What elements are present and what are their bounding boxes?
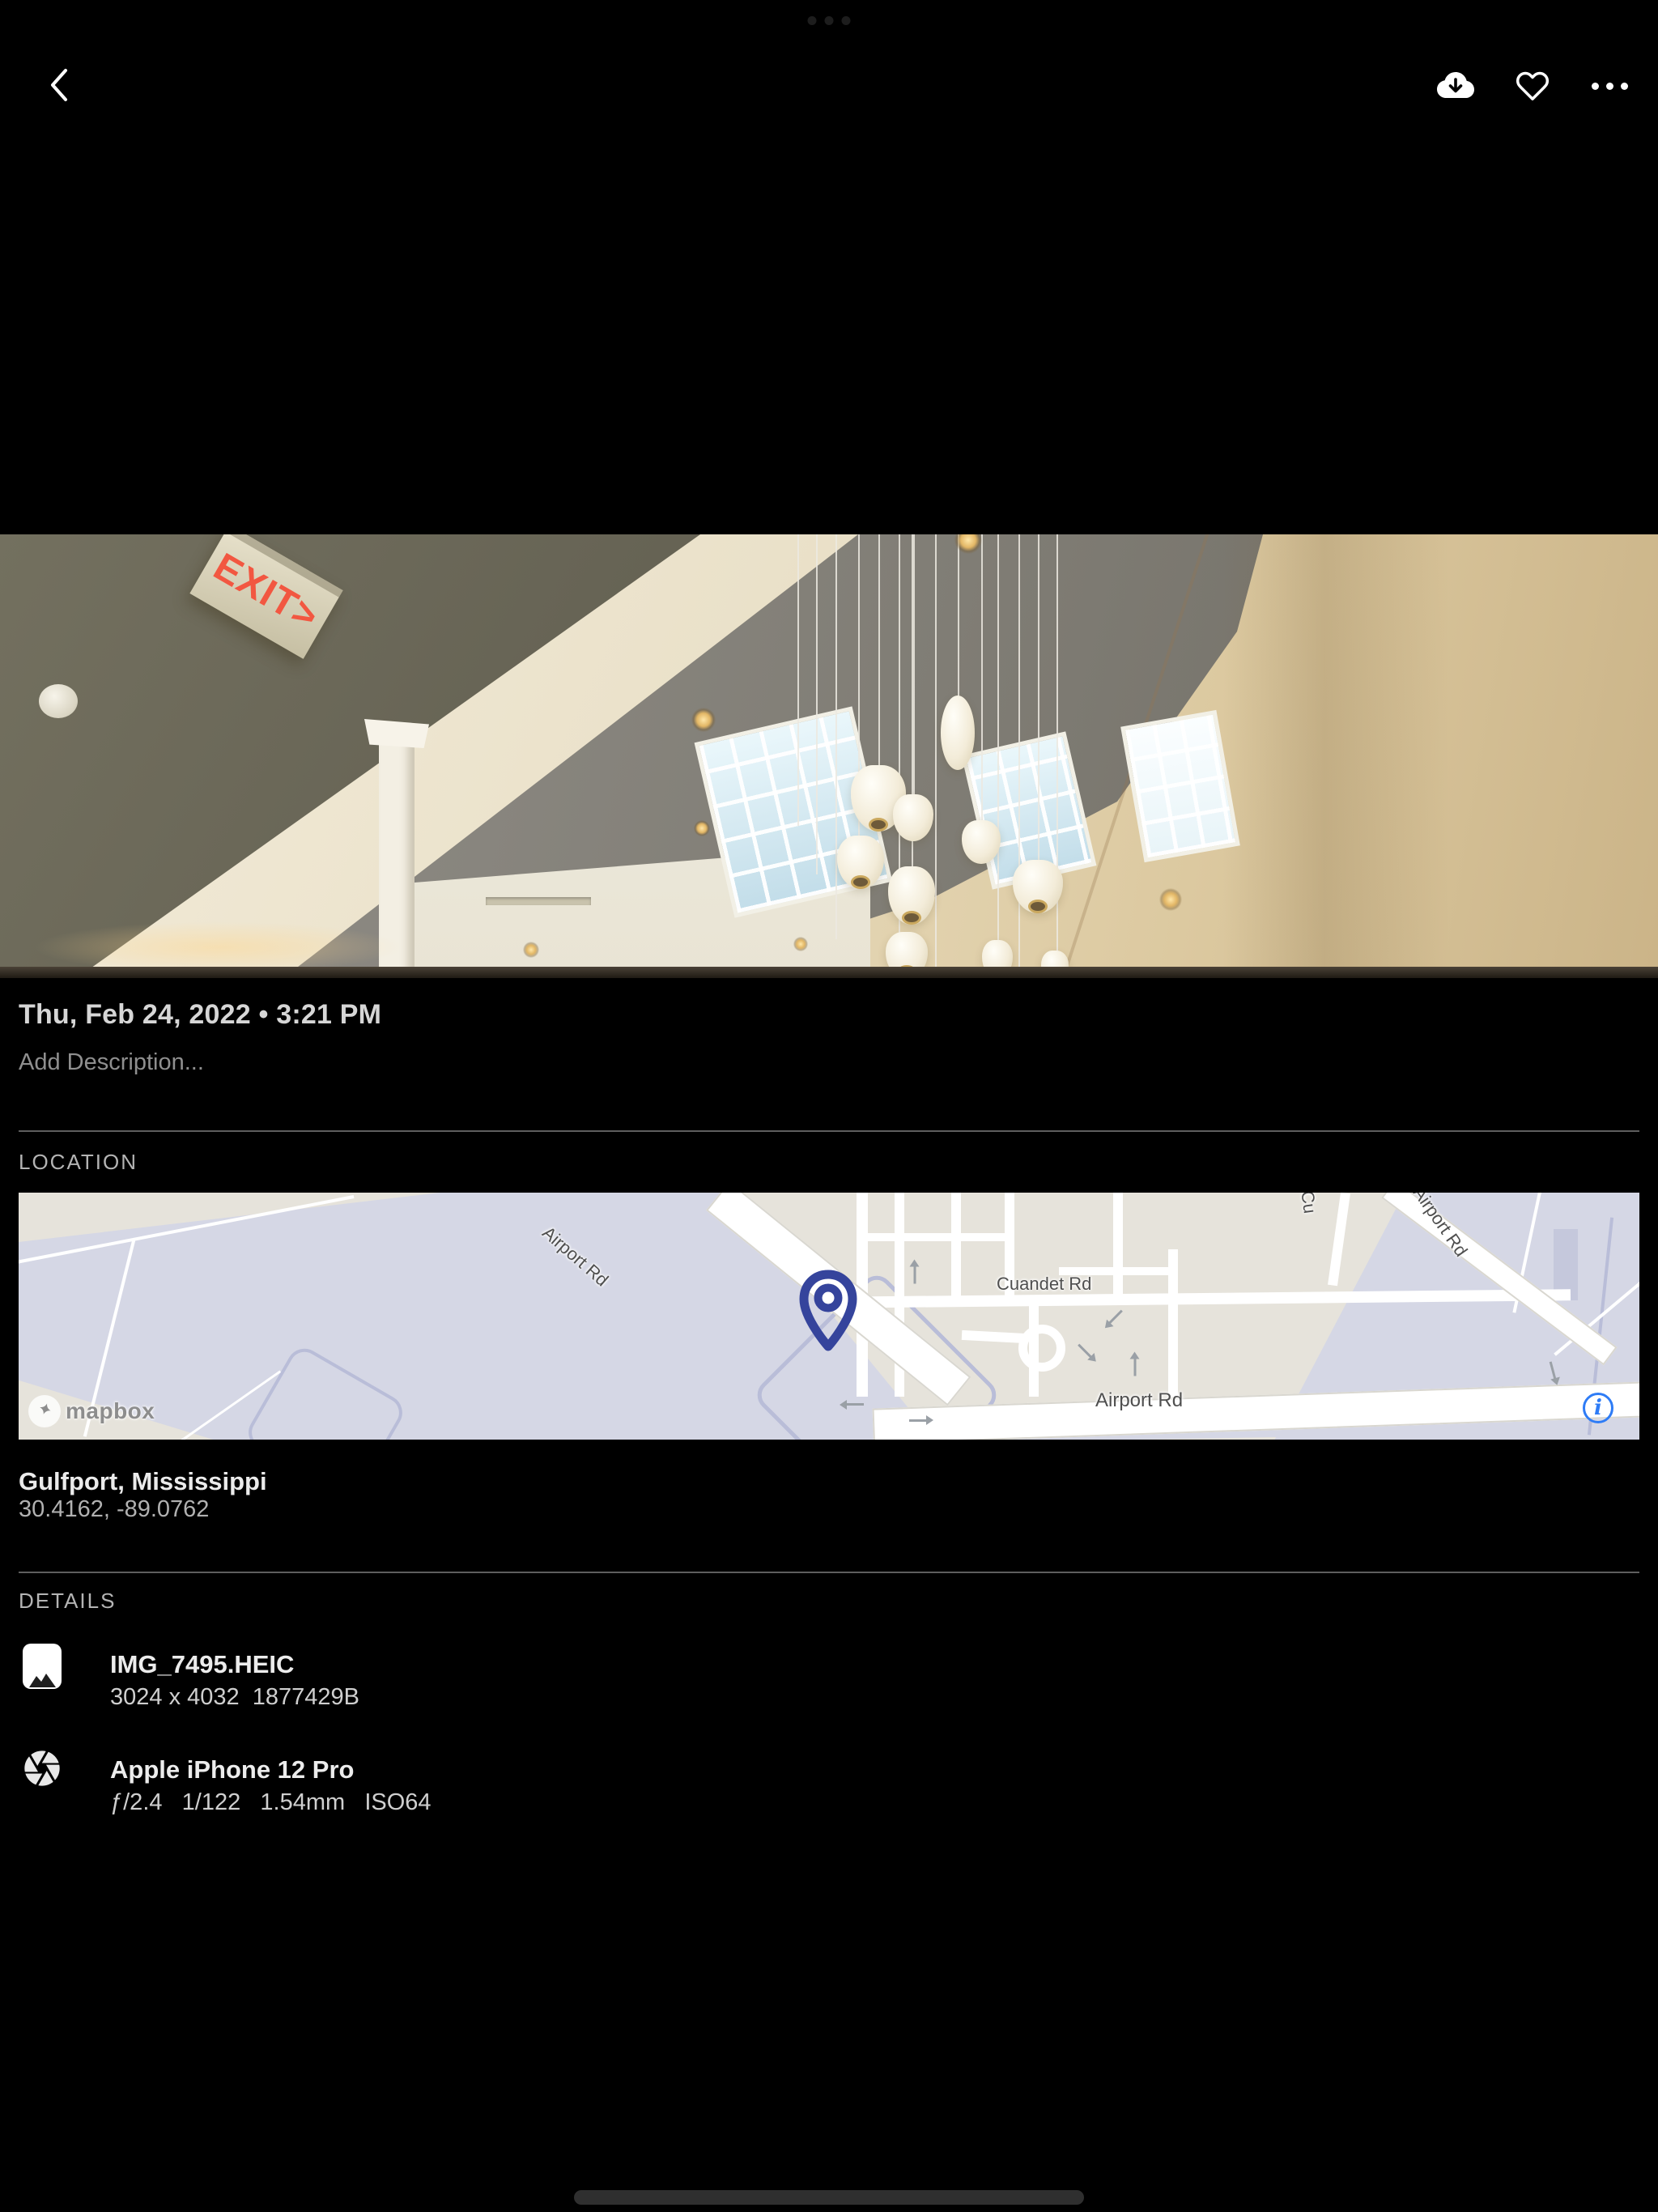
map-street [962,1330,1027,1343]
location-coordinates: 30.4162, -89.0762 [19,1496,209,1523]
location-place: Gulfport, Mississippi [19,1467,267,1496]
lamp-cable [1018,534,1020,978]
location-pin-icon [797,1269,859,1355]
file-meta: 3024 x 4032 1877429B [110,1684,359,1711]
photo-wall-shade [1222,534,1449,978]
map-street [951,1193,961,1300]
photo-warm-glow [32,921,405,973]
photo-vent [486,897,591,905]
smoke-detector [39,684,78,718]
road-arrow-icon [1108,1310,1123,1325]
mapbox-wordmark: mapbox [66,1398,155,1424]
pendant-lamp [888,866,935,925]
map-info-button[interactable]: i [1583,1393,1613,1423]
ceiling-light [1159,888,1182,911]
home-indicator[interactable] [574,2190,1084,2205]
lamp-cable [981,534,983,821]
back-button[interactable] [39,66,78,105]
download-button[interactable] [1436,70,1475,102]
lamp-cable [997,534,999,941]
camera-aperture-icon [21,1747,63,1789]
road-arrow-icon [914,1266,916,1284]
details-section-label: DETAILS [19,1589,116,1614]
location-map[interactable]: Airport Rd Cuandet Rd Airport Rd Airport… [19,1193,1639,1440]
more-button[interactable] [1588,78,1630,94]
ellipsis-icon [1592,83,1628,90]
road-arrow-icon [909,1419,927,1422]
lamp-cable [958,534,959,697]
map-label-cross-street: Cu [1296,1193,1320,1214]
cloud-download-icon [1437,71,1474,101]
mapbox-attribution[interactable]: mapbox [28,1395,155,1427]
map-label-cuandet-rd: Cuandet Rd [997,1274,1091,1295]
ceiling-light [691,708,716,732]
map-street [1328,1193,1350,1286]
road-arrow-icon [1134,1359,1137,1376]
file-name: IMG_7495.HEIC [110,1650,294,1679]
ceiling-light [523,942,539,958]
location-section-label: LOCATION [19,1150,138,1175]
road-arrow-icon [846,1403,864,1406]
camera-name: Apple iPhone 12 Pro [110,1755,354,1784]
lamp-cable [816,534,818,874]
pendant-lamp [941,696,975,770]
add-description-field[interactable]: Add Description... [19,1049,204,1076]
mapbox-logo-icon [28,1395,61,1427]
image-file-icon [23,1644,62,1689]
chevron-left-icon [46,67,70,105]
photo-date: Thu, Feb 24, 2022 • 3:21 PM [19,999,381,1031]
photo-viewer[interactable]: EXIT> [0,534,1658,978]
section-divider [19,1572,1639,1573]
lamp-cable [797,534,799,826]
ceiling-light [793,937,808,951]
map-street [1113,1193,1123,1302]
photo-bottom-shadow [0,967,1658,978]
info-icon: i [1594,1396,1602,1420]
section-divider [19,1130,1639,1132]
lamp-cable [913,534,915,795]
lamp-cable [935,534,937,978]
ceiling-light [694,820,710,836]
lamp-cable [1038,534,1039,861]
heart-icon [1516,70,1550,103]
map-roundabout [1018,1325,1065,1372]
lamp-cable [835,534,837,939]
map-label-airport-rd-horizontal: Airport Rd [1095,1389,1183,1412]
favorite-button[interactable] [1514,68,1551,104]
map-street [857,1233,1006,1241]
lamp-cable [878,534,880,767]
pendant-lamp [1013,860,1063,913]
camera-meta: ƒ/2.4 1/122 1.54mm ISO64 [110,1789,432,1816]
photo-detail-screen: EXIT> Thu, Feb 24, 2022 • 3:21 PM Add De… [0,0,1658,2212]
road-arrow-icon [1078,1344,1092,1359]
top-bar [0,0,1658,138]
